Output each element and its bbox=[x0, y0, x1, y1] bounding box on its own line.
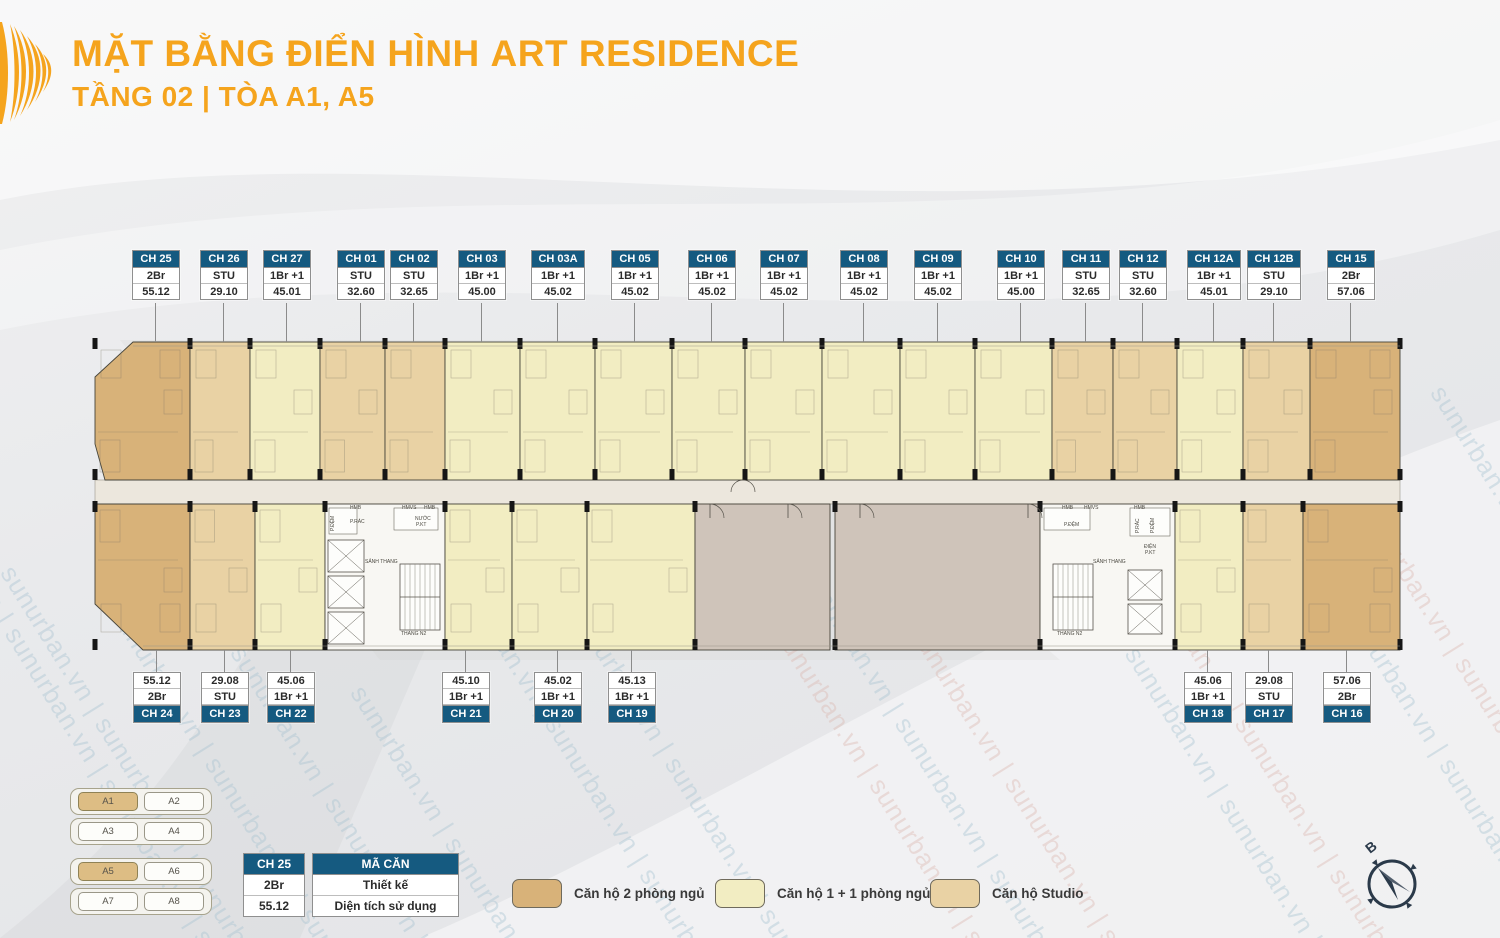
unit-type: STU bbox=[1246, 689, 1292, 705]
core-label: P.KT bbox=[416, 522, 426, 528]
page-subtitle-bold: TÒA A1, A5 bbox=[219, 81, 375, 112]
core-label: ĐIỆN bbox=[1144, 542, 1156, 550]
plan-unit-top-1 bbox=[190, 342, 250, 480]
unit-area: 32.60 bbox=[1120, 284, 1166, 299]
unit-id: CH 25 bbox=[133, 251, 179, 268]
label-connector bbox=[223, 303, 224, 342]
unit-type: STU bbox=[201, 268, 247, 284]
unit-label-ch27[interactable]: CH 271Br +145.01 bbox=[263, 250, 311, 300]
unit-label-ch26[interactable]: CH 26STU29.10 bbox=[200, 250, 248, 300]
core-label: THANG N2 bbox=[401, 631, 427, 637]
key-plan-block-a3[interactable]: A3 bbox=[78, 822, 138, 841]
unit-type: 2Br bbox=[134, 689, 180, 705]
unit-id: CH 02 bbox=[391, 251, 437, 268]
unit-id: CH 19 bbox=[609, 705, 655, 722]
unit-id: CH 26 bbox=[201, 251, 247, 268]
core-label: THANG N2 bbox=[1057, 631, 1083, 637]
key-table-header: MÃ CĂN bbox=[313, 854, 458, 875]
unit-label-ch18[interactable]: 45.061Br +1CH 18 bbox=[1184, 672, 1232, 723]
plan-unit-top-6 bbox=[520, 342, 595, 480]
core-label: P.KT bbox=[1145, 550, 1155, 556]
unit-id: CH 16 bbox=[1324, 705, 1370, 722]
label-connector bbox=[937, 303, 938, 342]
unit-id: CH 08 bbox=[841, 251, 887, 268]
label-connector bbox=[224, 650, 225, 672]
plan-unit-top-17 bbox=[1310, 342, 1400, 480]
unit-id: CH 09 bbox=[915, 251, 961, 268]
unit-id: CH 11 bbox=[1063, 251, 1109, 268]
unit-area: 29.10 bbox=[1248, 284, 1300, 299]
label-connector bbox=[465, 650, 466, 672]
unit-area: 55.12 bbox=[133, 284, 179, 299]
label-connector bbox=[1207, 650, 1208, 672]
unit-type: 2Br bbox=[133, 268, 179, 284]
unit-type: STU bbox=[338, 268, 384, 284]
unit-id: CH 03 bbox=[459, 251, 505, 268]
unit-label-ch24[interactable]: 55.122BrCH 24 bbox=[133, 672, 181, 723]
key-plan-row: A1A2 bbox=[70, 788, 212, 815]
unit-label-ch12b[interactable]: CH 12BSTU29.10 bbox=[1247, 250, 1301, 300]
unit-type: 1Br +1 bbox=[1188, 268, 1240, 284]
key-table-sample: CH 25 2Br 55.12 bbox=[243, 853, 305, 917]
label-connector bbox=[413, 303, 414, 342]
unit-type: 1Br +1 bbox=[609, 689, 655, 705]
unit-id: CH 22 bbox=[268, 705, 314, 722]
unit-label-ch22[interactable]: 45.061Br +1CH 22 bbox=[267, 672, 315, 723]
unit-area: 45.01 bbox=[1188, 284, 1240, 299]
unit-id: CH 07 bbox=[761, 251, 807, 268]
key-plan-row: A3A4 bbox=[70, 818, 212, 845]
unit-area: 55.12 bbox=[134, 673, 180, 689]
key-table-area: 55.12 bbox=[244, 896, 304, 916]
label-connector bbox=[156, 650, 157, 672]
unit-type: 1Br +1 bbox=[443, 689, 489, 705]
plan-unit-top-0 bbox=[95, 342, 190, 480]
unit-area: 32.60 bbox=[338, 284, 384, 299]
plan-unit-top-5 bbox=[445, 342, 520, 480]
unit-label-ch12[interactable]: CH 12STU32.60 bbox=[1119, 250, 1167, 300]
unit-label-ch12a[interactable]: CH 12A1Br +145.01 bbox=[1187, 250, 1241, 300]
plan-unit-top-12 bbox=[975, 342, 1052, 480]
plan-unit-bottom-10 bbox=[1175, 504, 1243, 650]
plan-unit-top-3 bbox=[320, 342, 385, 480]
unit-id: CH 15 bbox=[1328, 251, 1374, 268]
unit-label-ch19[interactable]: 45.131Br +1CH 19 bbox=[608, 672, 656, 723]
label-connector bbox=[1085, 303, 1086, 342]
label-connector bbox=[863, 303, 864, 342]
unit-label-ch10[interactable]: CH 101Br +145.00 bbox=[997, 250, 1045, 300]
unit-type: 1Br +1 bbox=[998, 268, 1044, 284]
key-plan-row: A7A8 bbox=[70, 888, 212, 915]
core-label: P.RÁC bbox=[1134, 518, 1141, 533]
plan-unit-top-15 bbox=[1177, 342, 1243, 480]
label-connector bbox=[1020, 303, 1021, 342]
core-label: HMVS bbox=[1084, 505, 1099, 511]
unit-label-ch03[interactable]: CH 031Br +145.00 bbox=[458, 250, 506, 300]
unit-area: 29.08 bbox=[1246, 673, 1292, 689]
unit-area: 45.02 bbox=[535, 673, 581, 689]
plan-unit-top-4 bbox=[385, 342, 445, 480]
unit-label-ch09[interactable]: CH 091Br +145.02 bbox=[914, 250, 962, 300]
brand-logo-icon bbox=[0, 22, 58, 124]
key-plan-block-a4[interactable]: A4 bbox=[144, 822, 204, 841]
plan-unit-bottom-11 bbox=[1243, 504, 1303, 650]
unit-label-ch16[interactable]: 57.062BrCH 16 bbox=[1323, 672, 1371, 723]
unit-id: CH 12A bbox=[1188, 251, 1240, 268]
unit-type: STU bbox=[1248, 268, 1300, 284]
unit-label-ch03a[interactable]: CH 03A1Br +145.02 bbox=[531, 250, 585, 300]
unit-area: 45.02 bbox=[915, 284, 961, 299]
unit-id: CH 12B bbox=[1248, 251, 1300, 268]
unit-area: 45.10 bbox=[443, 673, 489, 689]
legend-item: Căn hộ 1 + 1 phòng ngủ bbox=[715, 879, 930, 908]
unit-type: 1Br +1 bbox=[532, 268, 584, 284]
floor-plan: HMBP.ĐỆMP.RÁCHMVSHMBNƯỚCP.KTSẢNH THANGTH… bbox=[88, 332, 1410, 662]
unit-label-ch25[interactable]: CH 252Br55.12 bbox=[132, 250, 180, 300]
unit-label-ch05[interactable]: CH 051Br +145.02 bbox=[611, 250, 659, 300]
unit-area: 32.65 bbox=[391, 284, 437, 299]
unit-area: 32.65 bbox=[1063, 284, 1109, 299]
label-connector bbox=[631, 650, 632, 672]
unit-type: STU bbox=[1120, 268, 1166, 284]
label-connector bbox=[155, 303, 156, 342]
legend-item: Căn hộ Studio bbox=[930, 879, 1084, 908]
unit-area: 45.02 bbox=[612, 284, 658, 299]
plan-unit-top-13 bbox=[1052, 342, 1113, 480]
plan-unit-bottom-2 bbox=[255, 504, 325, 650]
unit-area: 45.02 bbox=[689, 284, 735, 299]
unit-type: 1Br +1 bbox=[612, 268, 658, 284]
core-label: P.RÁC bbox=[350, 518, 365, 525]
unit-type: 1Br +1 bbox=[761, 268, 807, 284]
label-connector bbox=[783, 303, 784, 342]
unit-area: 45.00 bbox=[459, 284, 505, 299]
unit-area: 45.02 bbox=[532, 284, 584, 299]
core-label: P.ĐỆM bbox=[328, 516, 336, 531]
page-title-light: MẶT BẰNG ĐIỂN HÌNH bbox=[72, 33, 491, 74]
compass-north-label: B bbox=[1362, 838, 1380, 857]
unit-type: STU bbox=[1063, 268, 1109, 284]
unit-label-ch07[interactable]: CH 071Br +145.02 bbox=[760, 250, 808, 300]
unit-label-ch06[interactable]: CH 061Br +145.02 bbox=[688, 250, 736, 300]
label-connector bbox=[1273, 303, 1274, 342]
unit-type: STU bbox=[391, 268, 437, 284]
plan-unit-bottom-7 bbox=[695, 504, 830, 650]
core-label: HMVS bbox=[402, 505, 417, 511]
core-label: P.ĐỆM bbox=[1064, 520, 1079, 528]
plan-unit-bottom-8 bbox=[835, 504, 1040, 650]
unit-label-ch11[interactable]: CH 11STU32.65 bbox=[1062, 250, 1110, 300]
unit-label-ch15[interactable]: CH 152Br57.06 bbox=[1327, 250, 1375, 300]
unit-id: CH 12 bbox=[1120, 251, 1166, 268]
unit-type: 1Br +1 bbox=[689, 268, 735, 284]
plan-unit-top-7 bbox=[595, 342, 672, 480]
unit-area: 45.01 bbox=[264, 284, 310, 299]
plan-unit-bottom-6 bbox=[587, 504, 695, 650]
label-connector bbox=[290, 650, 291, 672]
legend-label: Căn hộ 2 phòng ngủ bbox=[574, 886, 704, 901]
watermark-text: sunurban.vn | sunurban.vn | sunurban.vn … bbox=[1424, 380, 1500, 938]
legend-label: Căn hộ Studio bbox=[992, 886, 1084, 901]
unit-area: 29.08 bbox=[202, 673, 248, 689]
plan-unit-bottom-4 bbox=[445, 504, 512, 650]
unit-area: 45.06 bbox=[1185, 673, 1231, 689]
core-label: SẢNH THANG bbox=[1093, 558, 1126, 565]
unit-area: 29.10 bbox=[201, 284, 247, 299]
unit-type: 1Br +1 bbox=[1185, 689, 1231, 705]
label-connector bbox=[1350, 303, 1351, 342]
plan-unit-bottom-5 bbox=[512, 504, 587, 650]
unit-label-ch21[interactable]: 45.101Br +1CH 21 bbox=[442, 672, 490, 723]
key-table-desc: MÃ CĂN Thiết kế Diện tích sử dụng bbox=[312, 853, 459, 917]
unit-area: 45.13 bbox=[609, 673, 655, 689]
page-subtitle-light: TẦNG 02 | bbox=[72, 81, 219, 112]
key-plan-block-a2[interactable]: A2 bbox=[144, 792, 204, 811]
unit-label-ch01[interactable]: CH 01STU32.60 bbox=[337, 250, 385, 300]
label-connector bbox=[634, 303, 635, 342]
compass-icon: B bbox=[1352, 832, 1432, 922]
page-title: MẶT BẰNG ĐIỂN HÌNH ART RESIDENCE bbox=[72, 34, 799, 75]
label-connector bbox=[1346, 650, 1347, 672]
plan-unit-top-8 bbox=[672, 342, 745, 480]
unit-label-ch20[interactable]: 45.021Br +1CH 20 bbox=[534, 672, 582, 723]
core-label: NƯỚC bbox=[415, 515, 431, 522]
plan-unit-top-11 bbox=[900, 342, 975, 480]
unit-area: 45.06 bbox=[268, 673, 314, 689]
plan-unit-bottom-12 bbox=[1303, 504, 1400, 650]
key-table-row1: Thiết kế bbox=[313, 875, 458, 896]
core-label: P.ĐỆM bbox=[1148, 518, 1156, 533]
page-title-bold: ART RESIDENCE bbox=[491, 33, 800, 74]
key-plan-block-a7[interactable]: A7 bbox=[78, 892, 138, 911]
key-table-row2: Diện tích sử dụng bbox=[313, 896, 458, 916]
unit-id: CH 05 bbox=[612, 251, 658, 268]
unit-type: 1Br +1 bbox=[459, 268, 505, 284]
unit-id: CH 03A bbox=[532, 251, 584, 268]
unit-id: CH 10 bbox=[998, 251, 1044, 268]
page-subtitle: TẦNG 02 | TÒA A1, A5 bbox=[72, 81, 799, 113]
label-connector bbox=[557, 650, 558, 672]
unit-id: CH 01 bbox=[338, 251, 384, 268]
floor-plan-svg: HMBP.ĐỆMP.RÁCHMVSHMBNƯỚCP.KTSẢNH THANGTH… bbox=[88, 332, 1410, 662]
unit-label-ch08[interactable]: CH 081Br +145.02 bbox=[840, 250, 888, 300]
key-plan-block-a8[interactable]: A8 bbox=[144, 892, 204, 911]
unit-id: CH 27 bbox=[264, 251, 310, 268]
unit-area: 57.06 bbox=[1328, 284, 1374, 299]
core-label: HMB bbox=[350, 505, 362, 511]
unit-type: 2Br bbox=[1328, 268, 1374, 284]
label-connector bbox=[557, 303, 558, 342]
unit-id: CH 20 bbox=[535, 705, 581, 722]
page: { "header": { "title_light": "MẶT BẰNG Đ… bbox=[0, 0, 1500, 938]
unit-area: 57.06 bbox=[1324, 673, 1370, 689]
legend-swatch-2br bbox=[512, 879, 562, 908]
core-label: HMB bbox=[424, 505, 436, 511]
plan-unit-top-10 bbox=[822, 342, 900, 480]
unit-area: 45.02 bbox=[841, 284, 887, 299]
label-connector bbox=[1268, 650, 1269, 672]
label-connector bbox=[286, 303, 287, 342]
key-plan-block-a5[interactable]: A5 bbox=[78, 862, 138, 881]
unit-type: 1Br +1 bbox=[915, 268, 961, 284]
header: MẶT BẰNG ĐIỂN HÌNH ART RESIDENCE TẦNG 02… bbox=[72, 34, 799, 113]
core-label: HMB bbox=[1134, 505, 1146, 511]
core-label: HMB bbox=[1062, 505, 1074, 511]
legend-label: Căn hộ 1 + 1 phòng ngủ bbox=[777, 886, 930, 901]
unit-type: 1Br +1 bbox=[535, 689, 581, 705]
unit-area: 45.02 bbox=[761, 284, 807, 299]
core-label: SẢNH THANG bbox=[365, 558, 398, 565]
unit-id: CH 23 bbox=[202, 705, 248, 722]
plan-unit-top-9 bbox=[745, 342, 822, 480]
plan-unit-bottom-0 bbox=[95, 504, 190, 650]
key-plan-block-a1[interactable]: A1 bbox=[78, 792, 138, 811]
label-connector bbox=[1213, 303, 1214, 342]
legend-item: Căn hộ 2 phòng ngủ bbox=[512, 879, 704, 908]
unit-id: CH 18 bbox=[1185, 705, 1231, 722]
unit-type: 1Br +1 bbox=[264, 268, 310, 284]
unit-type: 1Br +1 bbox=[841, 268, 887, 284]
plan-unit-bottom-1 bbox=[190, 504, 255, 650]
label-connector bbox=[481, 303, 482, 342]
key-table-unit: CH 25 bbox=[244, 854, 304, 875]
legend-swatch-stu bbox=[930, 879, 980, 908]
label-connector bbox=[1142, 303, 1143, 342]
unit-type: STU bbox=[202, 689, 248, 705]
plan-unit-top-16 bbox=[1243, 342, 1310, 480]
unit-id: CH 06 bbox=[689, 251, 735, 268]
label-connector bbox=[711, 303, 712, 342]
plan-unit-top-2 bbox=[250, 342, 320, 480]
unit-id: CH 17 bbox=[1246, 705, 1292, 722]
legend-swatch-1br bbox=[715, 879, 765, 908]
label-connector bbox=[360, 303, 361, 342]
unit-type: 2Br bbox=[1324, 689, 1370, 705]
unit-area: 45.00 bbox=[998, 284, 1044, 299]
unit-label-ch23[interactable]: 29.08STUCH 23 bbox=[201, 672, 249, 723]
unit-id: CH 21 bbox=[443, 705, 489, 722]
unit-label-ch02[interactable]: CH 02STU32.65 bbox=[390, 250, 438, 300]
plan-unit-top-14 bbox=[1113, 342, 1177, 480]
unit-type: 1Br +1 bbox=[268, 689, 314, 705]
unit-label-ch17[interactable]: 29.08STUCH 17 bbox=[1245, 672, 1293, 723]
key-table-type: 2Br bbox=[244, 875, 304, 896]
key-plan-block-a6[interactable]: A6 bbox=[144, 862, 204, 881]
unit-id: CH 24 bbox=[134, 705, 180, 722]
key-plan-row: A5A6 bbox=[70, 858, 212, 885]
